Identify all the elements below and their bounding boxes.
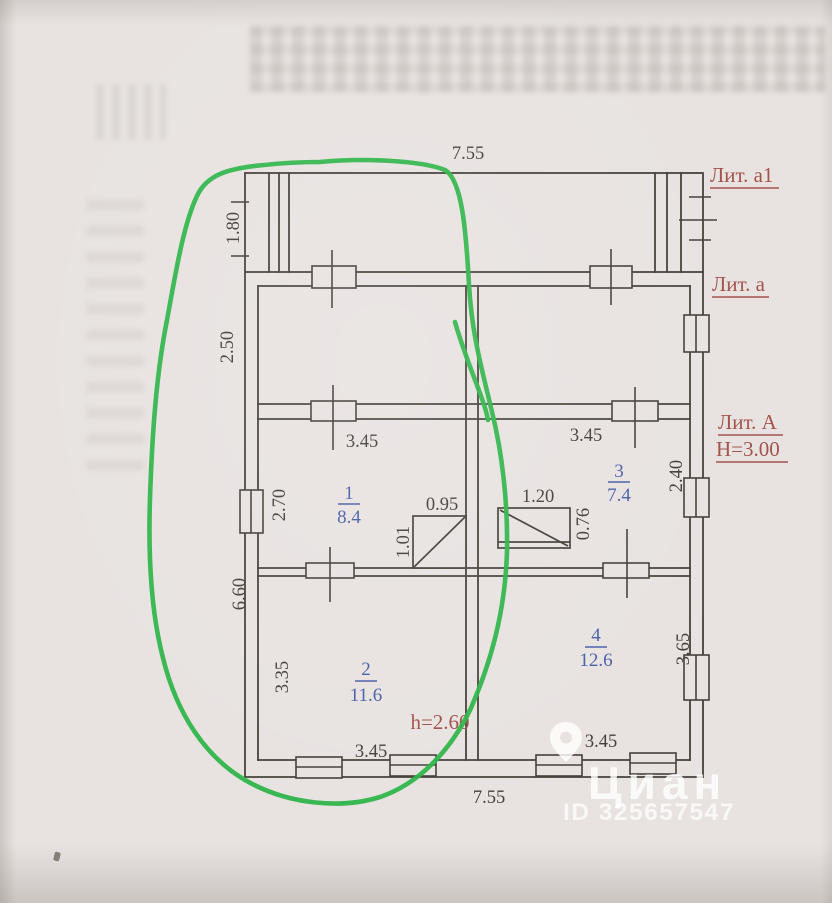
room1-label: 1 8.4 [337, 483, 361, 528]
dim-stove1-width: 0.95 [426, 495, 458, 515]
dim-room3-width: 3.45 [570, 426, 602, 446]
door-opening [603, 529, 649, 598]
door-opening [612, 387, 658, 448]
dim-room1-width: 3.45 [346, 432, 378, 452]
wall-lines [245, 173, 703, 777]
dim-room2-width: 3.45 [355, 742, 387, 762]
dim-top-width: 7.55 [452, 144, 484, 164]
scanned-paper: 7.55 7.55 1.80 2.50 6.60 3.45 2.70 0.95 … [0, 0, 832, 903]
room4-label: 4 12.6 [579, 625, 612, 671]
room3-label: 3 7.4 [607, 461, 631, 506]
dim-room1-depth: 2.70 [270, 489, 290, 521]
dim-room4-width: 3.45 [585, 732, 617, 752]
room4-number: 4 [591, 625, 601, 646]
door-openings [306, 249, 658, 602]
stoves [413, 508, 570, 568]
room4-area: 12.6 [579, 650, 612, 671]
label-annex: Лит. а [712, 272, 766, 296]
label-main-height: Н=3.00 [716, 437, 780, 461]
window [296, 757, 342, 778]
dim-room2-depth: 3.35 [273, 661, 293, 693]
room2-label: 2 11.6 [350, 659, 383, 706]
floor-plan-drawing: 7.55 7.55 1.80 2.50 6.60 3.45 2.70 0.95 … [0, 0, 832, 903]
door-opening [590, 249, 632, 305]
label-main: Лит. А [718, 410, 778, 434]
window [536, 755, 582, 776]
window [240, 490, 263, 533]
door-opening [312, 250, 356, 308]
dim-veranda-depth: 1.80 [224, 212, 244, 244]
green-circle-annotation [149, 160, 507, 803]
label-veranda: Лит. а1 [710, 163, 773, 187]
dim-stove3-depth: 0.76 [574, 508, 594, 540]
door-opening [306, 547, 354, 602]
window [684, 315, 709, 352]
room1-area: 8.4 [337, 507, 361, 528]
dim-stove3-width: 1.20 [522, 487, 554, 507]
stove [413, 516, 466, 568]
dim-stove1-depth: 1.01 [394, 526, 414, 558]
window [684, 478, 709, 517]
dim-room4-depth: 3.65 [674, 633, 694, 665]
room3-number: 3 [614, 461, 624, 482]
room2-number: 2 [361, 659, 371, 680]
dim-room3-depth: 2.40 [667, 460, 687, 492]
dim-annex-depth: 2.50 [218, 331, 238, 363]
watermark-id: ID 325657547 [563, 799, 735, 826]
dimension-ticks [231, 197, 717, 256]
room1-number: 1 [344, 483, 354, 504]
dim-main-depth: 6.60 [230, 578, 250, 610]
room3-area: 7.4 [607, 485, 631, 506]
dim-bottom-width: 7.55 [473, 788, 505, 808]
room2-area: 11.6 [350, 685, 383, 706]
